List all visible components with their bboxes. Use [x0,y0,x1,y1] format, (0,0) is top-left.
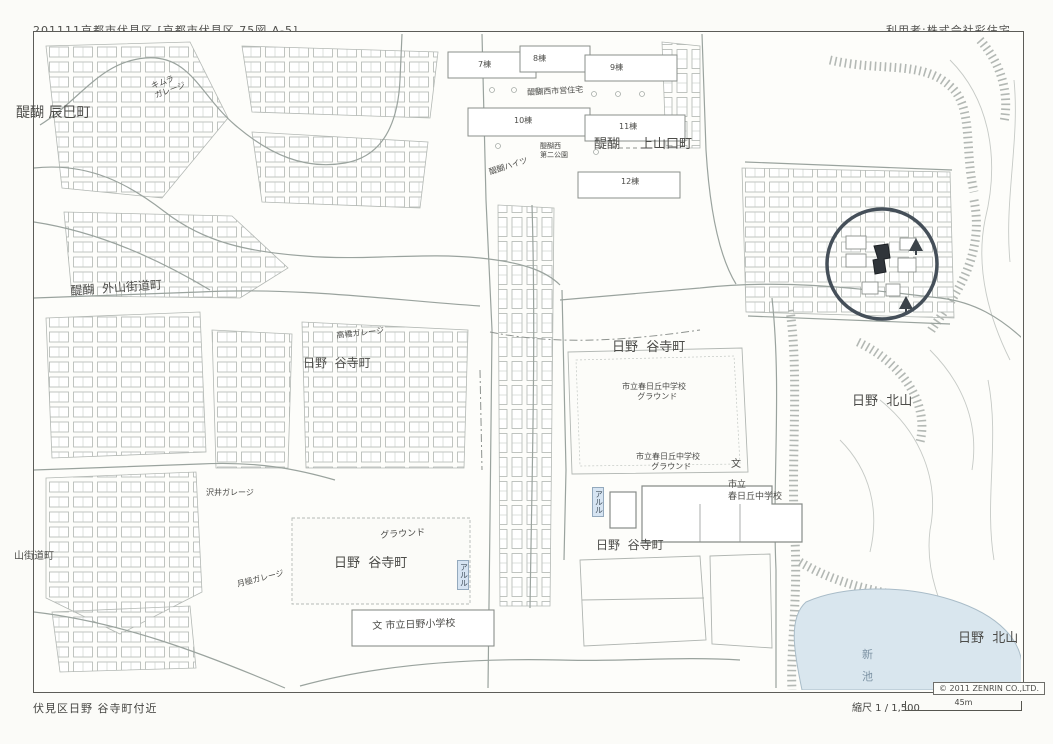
zenrin-copyright: © 2011 ZENRIN CO.,LTD. [933,682,1045,695]
label-yamakaidocho: 山街道町 [14,550,54,563]
label-bldg11: 11棟 [619,122,637,132]
label-bldg12: 12棟 [621,177,639,187]
label-kasugaoka-ground-lower: 市立春日丘中学校 グラウンド [636,452,700,473]
label-bldg7: 7棟 [478,60,491,70]
label-shin-ike: 新 池 [862,644,873,688]
label-kasugaoka-school: 市立 春日丘中学校 [728,480,782,503]
label-hino-tanidera-nw: 日野 谷寺町 [303,356,371,372]
label-daigonishi-park: 醍醐西 第二公園 [540,142,568,160]
label-hino-tanidera-ne: 日野 谷寺町 [612,340,685,357]
label-aruru-1: アルル [592,487,604,517]
label-bldg10: 10棟 [514,116,532,126]
label-hino-tanidera-se: 日野 谷寺町 [596,538,664,554]
scanned-map-page: 201111京都市伏見区 [京都市伏見区 75図 A-5] 利用者:株式会社彩住… [0,0,1053,744]
label-kamiyamaguchi-prefix: 醍醐 [594,137,620,154]
label-kamiyamaguchi-name: 上山口町 [640,137,692,154]
label-hino-kitayama-1: 日野 北山 [852,394,912,411]
label-daigo-tatsumicho: 醍醐 辰巳町 [16,104,90,122]
label-kasugaoka-ground-upper: 市立春日丘中学校 グラウンド [622,382,686,403]
label-bldg8: 8棟 [533,54,546,64]
label-hino-kitayama-2: 日野 北山 [958,631,1018,648]
map-canvas [0,0,1053,744]
map-area-caption: 伏見区日野 谷寺町付近 [33,700,158,716]
label-hino-tanidera-s: 日野 谷寺町 [334,556,407,573]
label-school-mark: 文 [731,458,741,471]
scale-distance-label: 45m [906,698,1021,707]
label-sawai-garage: 沢井ガレージ [206,488,254,498]
label-aruru-2: アルル [457,560,469,590]
large-parcels [580,554,772,648]
label-bldg9: 9棟 [610,63,623,73]
scale-bar: 45m [905,701,1022,711]
